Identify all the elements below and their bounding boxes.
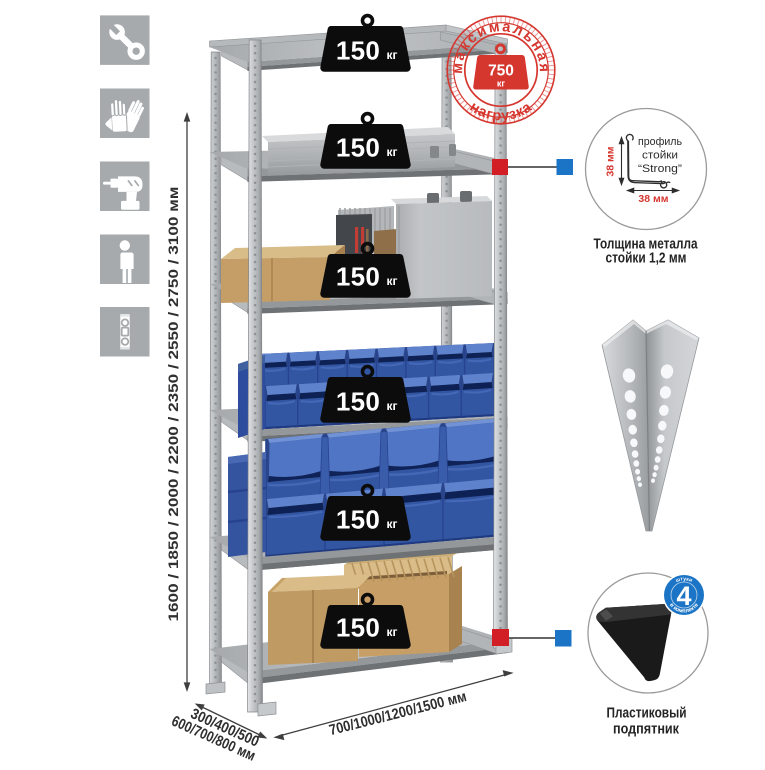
svg-text:кг: кг — [386, 48, 397, 62]
svg-text:кг: кг — [386, 274, 397, 288]
svg-text:150: 150 — [336, 505, 380, 535]
svg-text:кг: кг — [386, 145, 397, 159]
svg-text:“Strong”: “Strong” — [638, 163, 682, 175]
svg-text:150: 150 — [336, 133, 380, 163]
svg-text:Пластиковый: Пластиковый — [607, 705, 687, 722]
svg-text:150: 150 — [336, 613, 380, 643]
svg-text:кг: кг — [386, 399, 397, 413]
svg-text:1600 / 1850 / 2000 / 2200 / 23: 1600 / 1850 / 2000 / 2200 / 2350 / 2550 … — [166, 187, 181, 622]
svg-text:кг: кг — [386, 625, 397, 639]
svg-text:стойки: стойки — [642, 150, 678, 162]
svg-text:150: 150 — [336, 262, 380, 292]
svg-text:700/1000/1200/1500 мм: 700/1000/1200/1500 мм — [327, 688, 468, 739]
svg-text:4: 4 — [676, 581, 691, 611]
svg-text:150: 150 — [336, 36, 380, 66]
svg-text:38 мм: 38 мм — [638, 193, 668, 205]
svg-text:150: 150 — [336, 387, 380, 417]
svg-text:подпятник: подпятник — [613, 721, 679, 738]
svg-text:кг: кг — [386, 517, 397, 531]
svg-text:стойки 1,2 мм: стойки 1,2 мм — [606, 251, 687, 267]
svg-text:750: 750 — [488, 63, 514, 80]
svg-text:кг: кг — [497, 79, 506, 89]
svg-text:профиль: профиль — [638, 136, 682, 148]
svg-text:38 мм: 38 мм — [605, 146, 617, 176]
